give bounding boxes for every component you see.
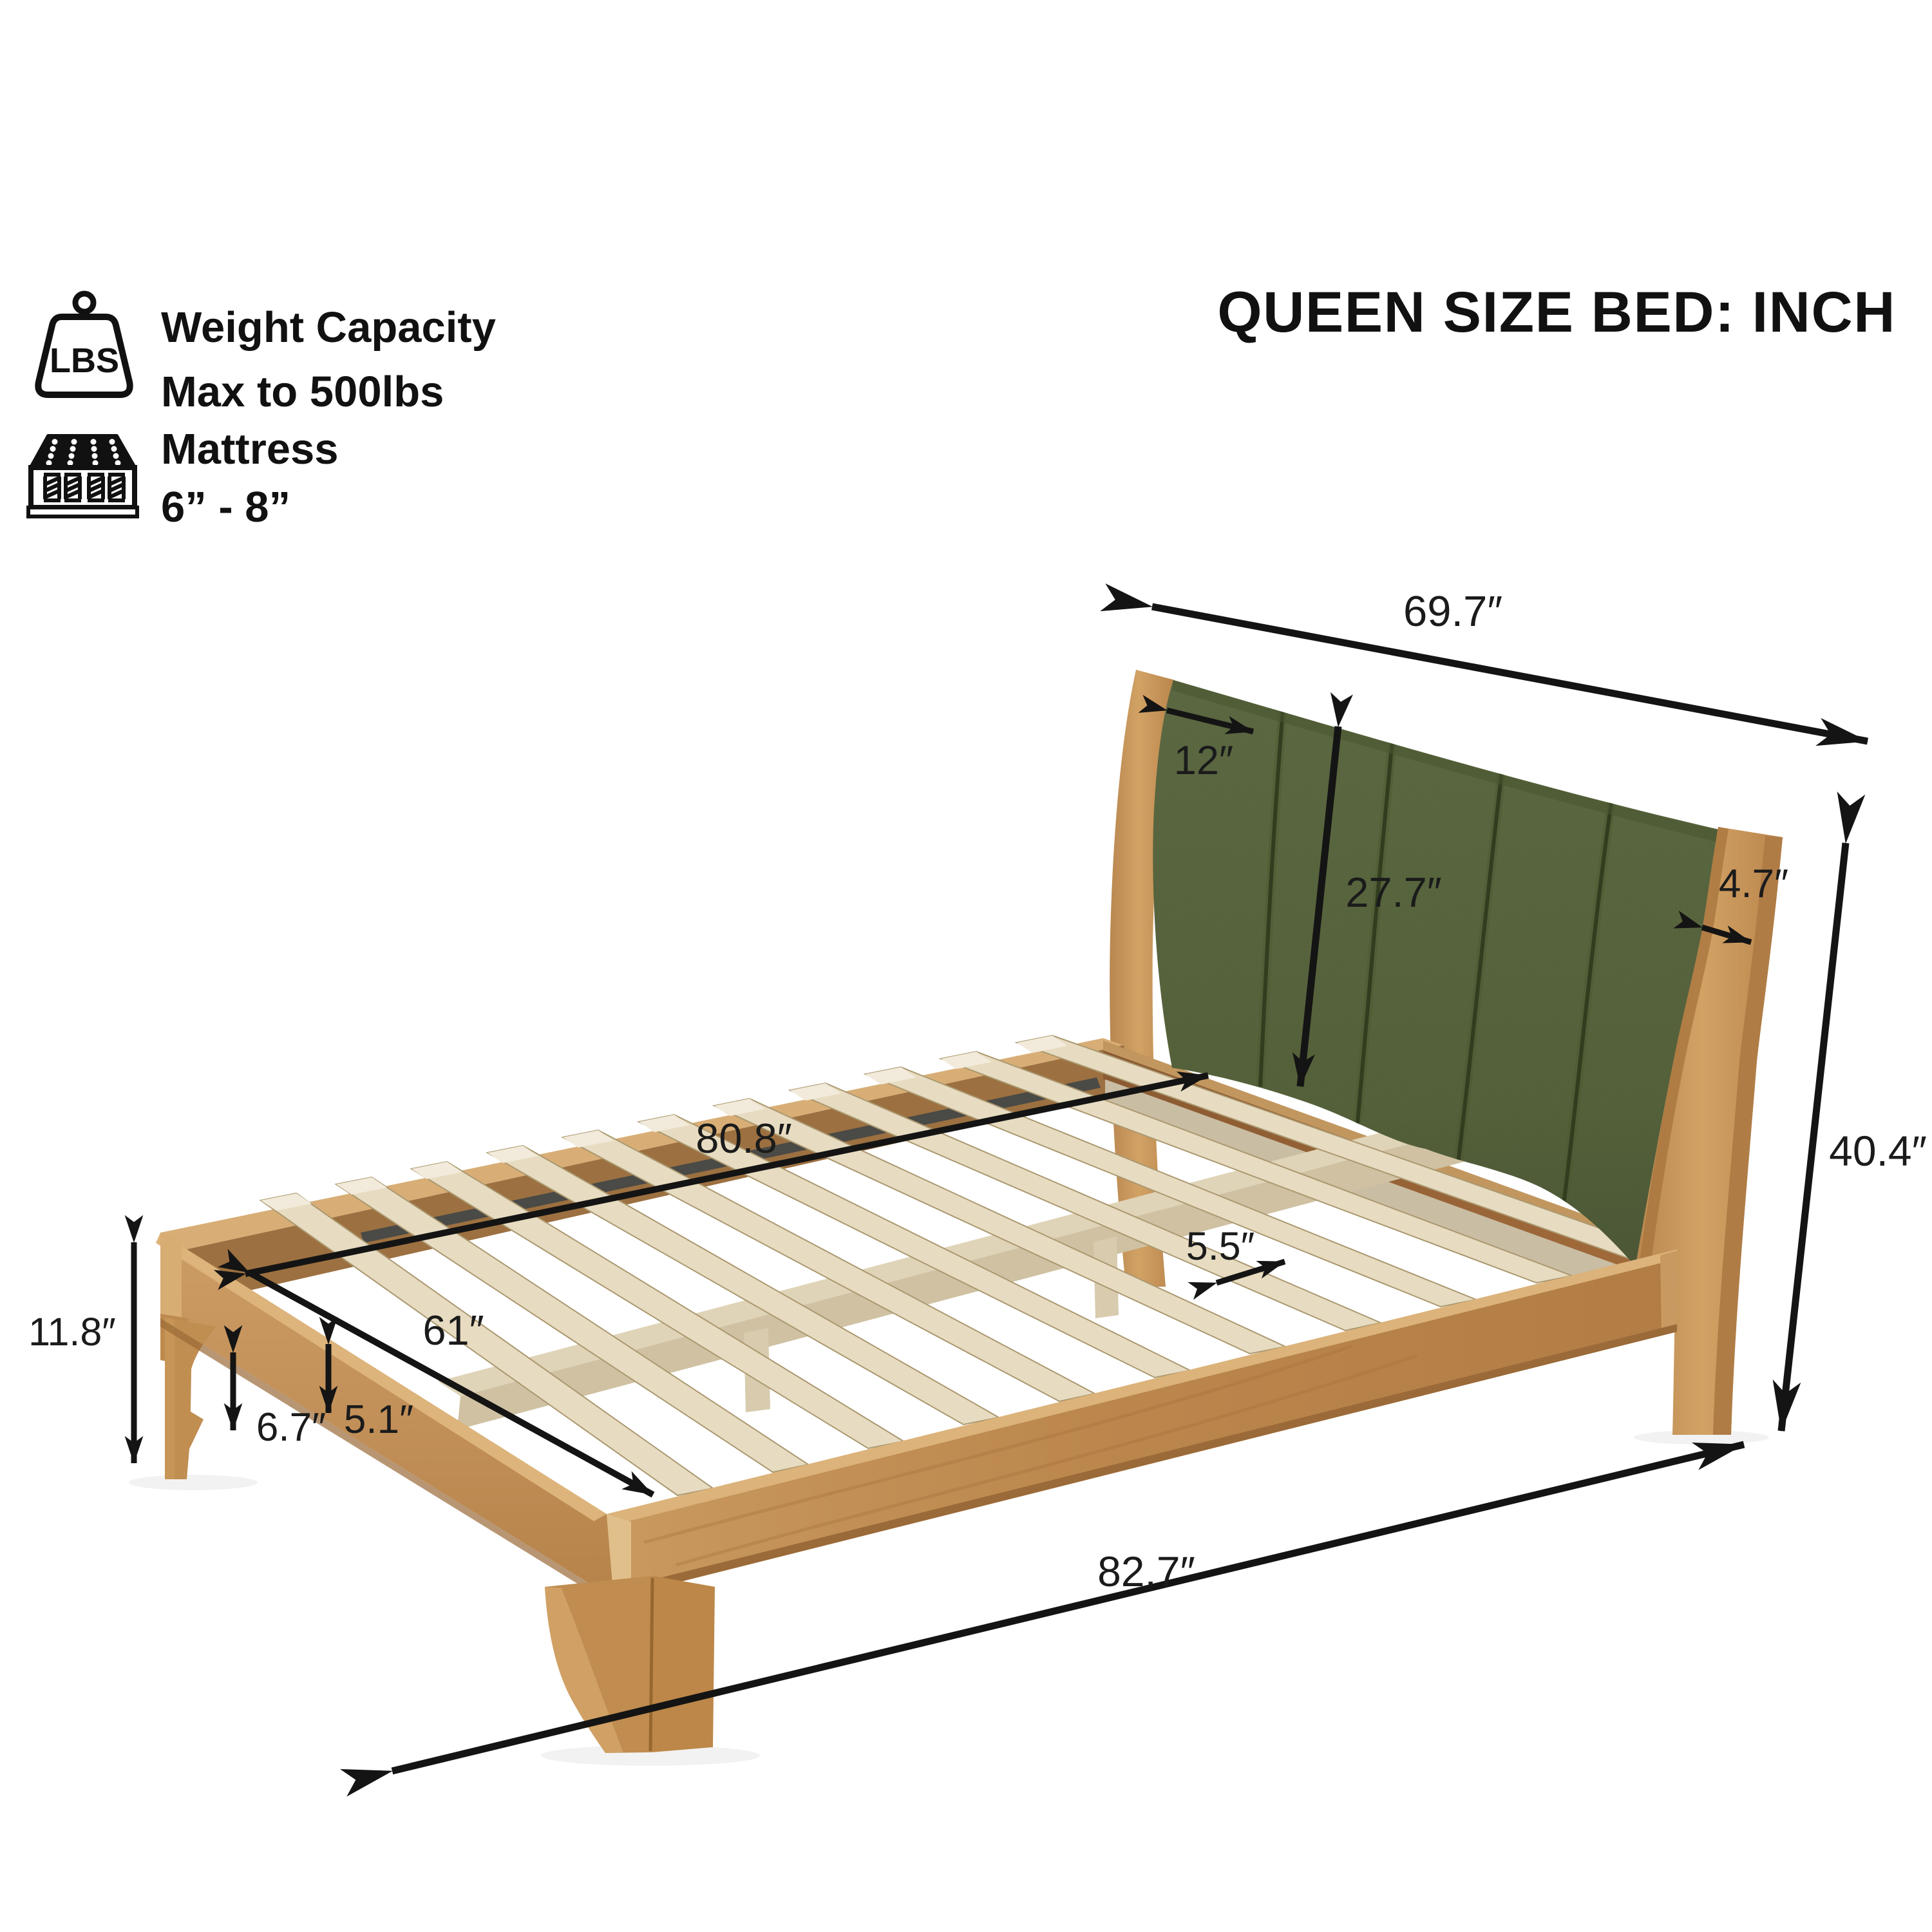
- svg-text:27.7″: 27.7″: [1345, 869, 1442, 916]
- svg-text:12″: 12″: [1174, 738, 1233, 783]
- svg-text:4.7″: 4.7″: [1719, 862, 1788, 906]
- svg-text:40.4″: 40.4″: [1829, 1127, 1927, 1175]
- svg-text:LBS: LBS: [50, 341, 119, 380]
- svg-text:69.7″: 69.7″: [1403, 587, 1502, 636]
- svg-text:61″: 61″: [422, 1307, 484, 1354]
- svg-text:82.7″: 82.7″: [1097, 1548, 1195, 1595]
- svg-text:Max to 500lbs: Max to 500lbs: [161, 368, 444, 416]
- svg-text:6.7″: 6.7″: [256, 1405, 326, 1450]
- svg-text:Weight Capacity: Weight Capacity: [161, 303, 496, 352]
- svg-text:6” - 8”: 6” - 8”: [161, 483, 290, 531]
- svg-text:11.8″: 11.8″: [28, 1310, 116, 1354]
- svg-text:5.5″: 5.5″: [1186, 1224, 1255, 1268]
- svg-text:QUEEN SIZE BED: INCH: QUEEN SIZE BED: INCH: [1217, 279, 1896, 344]
- svg-text:Mattress: Mattress: [161, 425, 339, 473]
- svg-text:80.8″: 80.8″: [696, 1115, 792, 1162]
- svg-text:5.1″: 5.1″: [344, 1397, 413, 1442]
